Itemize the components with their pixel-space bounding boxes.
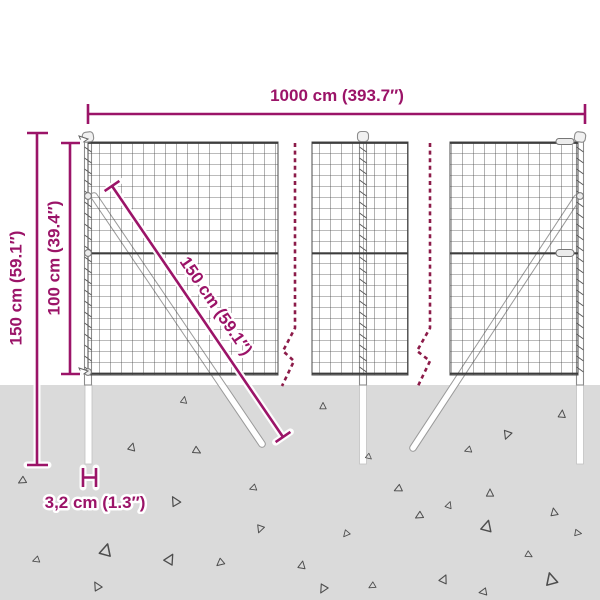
label-total-height: 150 cm (59.1″) bbox=[7, 231, 26, 346]
label-total-width: 1000 cm (393.7″) bbox=[270, 86, 404, 105]
clamp-left-brace bbox=[85, 193, 92, 200]
fence-post-right-underground bbox=[577, 385, 584, 464]
label-fence-height: 100 cm (39.4″) bbox=[45, 201, 64, 316]
post-cap-middle bbox=[358, 132, 369, 142]
mesh-panel-2 bbox=[312, 142, 408, 375]
turnbuckle-top-wire bbox=[556, 139, 574, 145]
turnbuckle-mid-wire bbox=[556, 250, 574, 257]
clamp-right-brace bbox=[577, 193, 584, 200]
post-cap-right bbox=[574, 131, 586, 142]
fence-post-middle-underground bbox=[360, 385, 367, 464]
fence-post-left-underground bbox=[85, 385, 92, 464]
mesh-panel-3 bbox=[450, 142, 578, 375]
clamp-left-mid bbox=[85, 250, 92, 257]
label-post-width: 3,2 cm (1.3″) bbox=[45, 493, 146, 512]
diagram-canvas: 1000 cm (393.7″) 150 cm (59.1″) 100 cm (… bbox=[0, 0, 600, 600]
fence-dimension-diagram: 1000 cm (393.7″) 150 cm (59.1″) 100 cm (… bbox=[0, 0, 600, 600]
